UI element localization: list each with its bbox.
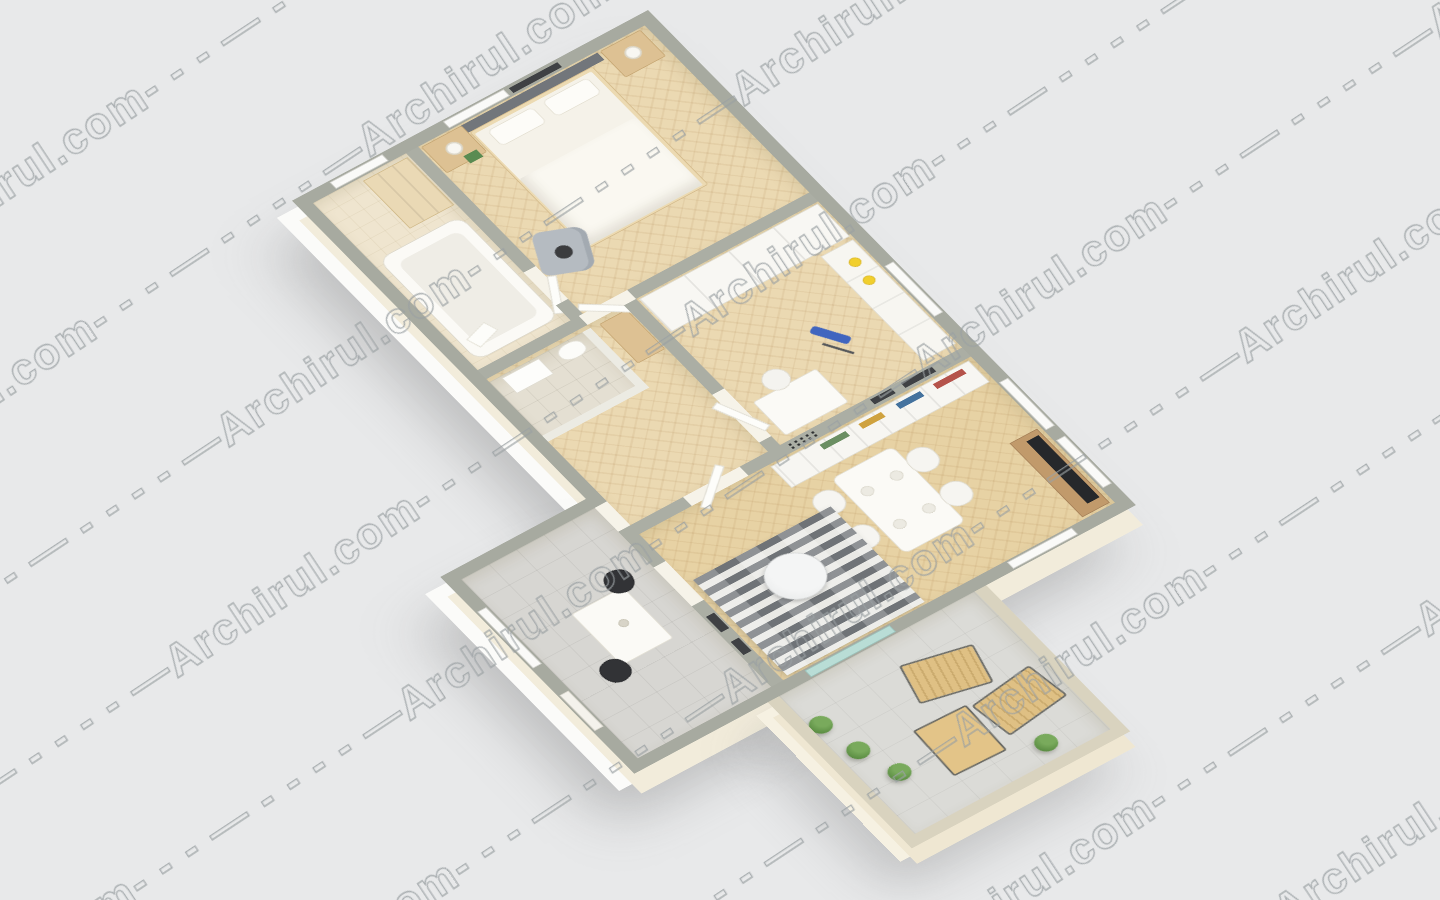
apartment-3d-plan	[114, 10, 1295, 900]
floorplan-scene	[0, 0, 1440, 900]
